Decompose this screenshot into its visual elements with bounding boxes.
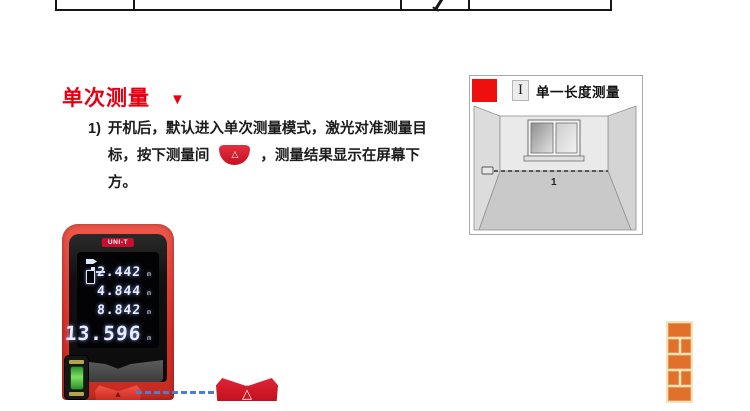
lcd-screen: 2.442 m 4.844 m 8.842 m 13.596 m [77, 252, 159, 348]
laser-beam-dashed-line [136, 391, 214, 394]
reading-row: 4.844 m [96, 284, 151, 299]
table-cell [133, 0, 400, 11]
measurement-readings: 2.442 m 4.844 m 8.842 m 13.596 m [65, 265, 151, 345]
brand-logo: UNI-T [102, 238, 134, 247]
instruction-line-1: 开机后，默认进入单次测量模式，激光对准测量目 [108, 116, 448, 143]
brick-row [668, 371, 691, 385]
reading-value: 8.842 [96, 303, 141, 318]
instruction-paragraph: 1) 开机后，默认进入单次测量模式，激光对准测量目 标，按下测量间△，测量结果显… [88, 116, 448, 197]
laser-status-icon [86, 259, 97, 264]
brick-row [668, 387, 691, 401]
level-scale-bottom [69, 392, 84, 396]
reading-unit: m [147, 270, 151, 278]
red-square-marker [472, 79, 497, 102]
length-mode-icon: I [512, 80, 529, 101]
brick-row [668, 339, 691, 353]
triangle-down-icon: ▼ [170, 91, 185, 108]
reading-row-primary: 13.596 m [64, 322, 152, 345]
brick-row [668, 323, 691, 337]
reading-row: 2.442 m [96, 265, 151, 280]
laser-meter-device-image: UNI-T 2.442 m 4.844 m 8.842 m 13.596 [62, 224, 174, 400]
level-vial [70, 366, 84, 390]
reading-value: 4.844 [96, 284, 141, 299]
list-number: 1) [88, 116, 101, 197]
reading-value: 13.596 [64, 322, 142, 345]
room-perspective-drawing: 1 [472, 105, 638, 232]
measure-button-icon: △ [219, 145, 250, 165]
reading-unit: m [146, 334, 150, 342]
section-heading: 单次测量▼ [62, 82, 185, 112]
diagram-device-icon [482, 167, 493, 174]
measure-button-callout-icon: △ [216, 377, 278, 401]
diagram-measure-label: 1 [551, 177, 557, 188]
brick-row [668, 355, 691, 369]
diagram-header: I 单一长度测量 [472, 78, 640, 103]
diagram-title: 单一长度测量 [536, 81, 620, 101]
level-scale-top [69, 360, 84, 364]
table-cell [400, 0, 468, 11]
reading-row: 8.842 m [96, 303, 151, 318]
table-cell [55, 0, 133, 11]
table-fragment [55, 0, 612, 11]
table-diagonal-mark-icon [434, 0, 444, 10]
bubble-level [64, 355, 89, 400]
reading-unit: m [147, 308, 151, 316]
table-cell [468, 0, 612, 11]
measurement-diagram: I 单一长度测量 1 [469, 75, 643, 235]
brick-wall-graphic [666, 321, 693, 403]
instruction-line-2: 标，按下测量间△，测量结果显示在屏幕下方。 [108, 143, 448, 197]
reading-value: 2.442 [96, 265, 141, 280]
section-title: 单次测量 [62, 87, 150, 110]
reading-unit: m [147, 289, 151, 297]
